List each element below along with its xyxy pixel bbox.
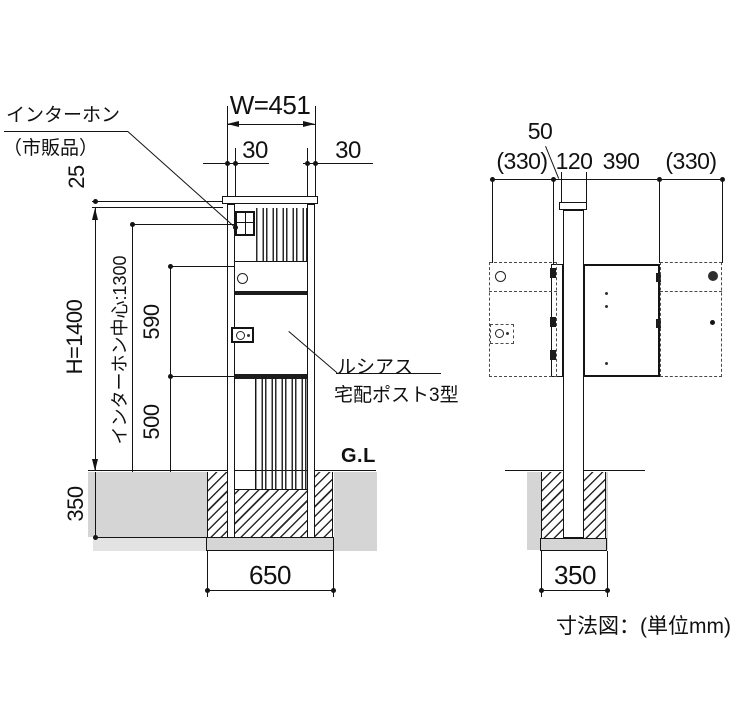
front-louver-bottom-edge xyxy=(255,379,256,489)
side-dim-tick-2 xyxy=(586,172,587,203)
side-door-swing-left-divider xyxy=(489,291,557,292)
dim-350-side-dot-left xyxy=(539,588,544,593)
front-louver-bottom xyxy=(255,379,307,489)
side-ext-2 xyxy=(553,181,554,265)
front-lock xyxy=(231,327,254,343)
dim-350-side-label: 350 xyxy=(549,560,601,591)
ext-line-post-left-inner xyxy=(235,148,236,196)
front-louver-top-baseline xyxy=(235,261,307,262)
dim-width-label: W=451 xyxy=(224,90,316,121)
intercom-label-line1: インターホン xyxy=(6,100,120,127)
intercom-leader-line xyxy=(127,131,236,228)
side-swing-left-lock xyxy=(490,324,514,344)
dim-330-left-label: (330) xyxy=(491,148,553,175)
intercom-label-line2: （市販品） xyxy=(3,133,98,160)
intercom-leader-underline xyxy=(4,131,128,132)
ext-line-cap-bottom xyxy=(92,207,223,208)
ground-level-label: G.L xyxy=(341,445,376,468)
front-ground-left-lower xyxy=(93,537,207,551)
dim-350-side-dot-right xyxy=(605,588,610,593)
side-ext-4 xyxy=(722,181,723,263)
ext-line-cap-top xyxy=(92,201,223,202)
front-button-circle xyxy=(237,273,248,284)
side-footing-slab xyxy=(540,538,607,551)
intercom-box-rail xyxy=(237,222,253,223)
dim-390-label: 390 xyxy=(600,148,642,175)
product-label-line1: ルシアス xyxy=(337,352,413,379)
front-post-right xyxy=(307,204,315,538)
front-lock-dot xyxy=(247,334,250,337)
front-louver-top xyxy=(256,208,307,261)
ext-line-post-right-inner xyxy=(307,148,308,196)
dim-height-arrow-top xyxy=(92,208,98,220)
side-dim-line xyxy=(492,179,722,180)
front-foundation-inner xyxy=(230,489,310,537)
ext-line-post-left-outer xyxy=(227,106,228,196)
dim-30-left-label: 30 xyxy=(238,137,272,165)
product-label-line2: 宅配ポスト3型 xyxy=(334,380,459,407)
dim-350-front-line xyxy=(95,472,96,537)
side-dim-tick-1 xyxy=(561,172,562,203)
front-post-left xyxy=(227,204,235,538)
dim-1300-label: インターホン中心:1300 xyxy=(106,240,132,460)
intercom-box xyxy=(235,211,255,236)
dim-1300-ref-line xyxy=(132,224,236,225)
front-ground-left xyxy=(88,472,207,537)
dim-width-line xyxy=(227,124,315,125)
front-footing-slab xyxy=(206,537,334,551)
side-swing-left-lock-dot xyxy=(506,332,509,335)
ext-line-post-right-outer xyxy=(315,106,316,196)
side-foundation-right xyxy=(584,472,606,538)
dim-width-arrow-right xyxy=(303,121,315,127)
side-door-swing-right-divider xyxy=(660,291,722,292)
dim-height-arrow-bottom xyxy=(92,459,98,471)
dim-50-label: 50 xyxy=(524,118,556,145)
dim-30-dot-4 xyxy=(313,161,318,166)
side-post xyxy=(563,210,584,538)
dim-30-dot-1 xyxy=(225,161,230,166)
dim-350-front-label: 350 xyxy=(63,482,89,526)
side-box-rivet-2 xyxy=(605,305,608,308)
dim-590-ref-top xyxy=(170,266,235,267)
dim-650-dot-left xyxy=(205,588,210,593)
dim-120-label: 120 xyxy=(553,148,595,175)
front-lock-dial xyxy=(236,331,245,340)
dim-650-label: 650 xyxy=(230,560,310,591)
side-box-rivet-1 xyxy=(605,292,608,295)
dimension-diagram: G.L ルシアス 宅配ポスト3型 インターホン （市販品） W=451 30 3… xyxy=(0,0,740,726)
side-swing-left-lock-dial xyxy=(495,329,504,338)
side-swing-right-dot xyxy=(710,320,715,325)
unit-caption: 寸法図：(単位mm) xyxy=(556,610,731,640)
front-ground-right xyxy=(334,472,377,551)
dim-590-500-line xyxy=(170,266,171,472)
side-box-body xyxy=(583,264,660,377)
dim-25-dot xyxy=(93,199,98,204)
dim-330-right-label: (330) xyxy=(660,148,722,175)
dim-30-right-label: 30 xyxy=(331,137,365,165)
side-ext-3 xyxy=(659,181,660,263)
intercom-box-mullion xyxy=(245,213,246,234)
dim-height-label: H=1400 xyxy=(62,295,88,379)
side-swing-right-knob xyxy=(708,271,718,281)
dim-650-dot-right xyxy=(331,588,336,593)
side-foundation-left xyxy=(541,472,563,538)
side-post-cap xyxy=(559,202,587,210)
dim-1300-line xyxy=(132,224,133,472)
dim-500-label: 500 xyxy=(139,400,165,444)
dim-350-front-ref xyxy=(95,537,207,538)
dim-width-arrow-left xyxy=(227,121,239,127)
dim-25-label: 25 xyxy=(64,162,90,192)
front-door-top-edge xyxy=(235,291,307,295)
dim-30-dot-3 xyxy=(305,161,310,166)
intercom-leader-dot xyxy=(233,225,238,230)
dim-590-label: 590 xyxy=(139,300,165,344)
side-swing-left-circle xyxy=(495,271,506,282)
front-cap-bar xyxy=(222,196,318,204)
side-box-rivet-3 xyxy=(605,362,608,365)
dim-590-ref-bottom xyxy=(170,376,235,377)
side-ext-1 xyxy=(492,181,493,263)
dim-height-line xyxy=(95,207,96,471)
